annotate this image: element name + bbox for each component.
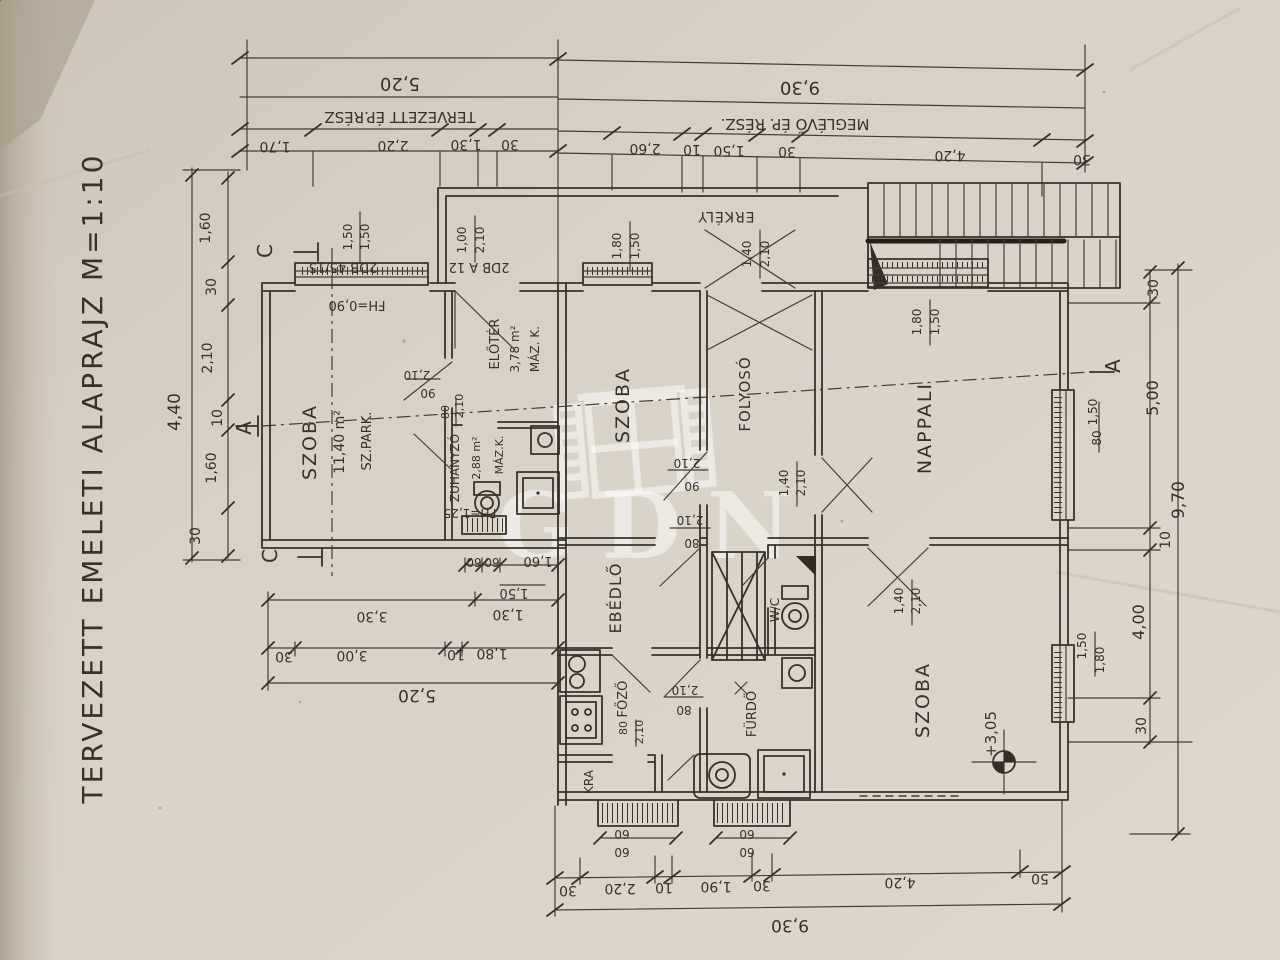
dim-bot-3: 10 xyxy=(655,879,673,895)
dim-bot-5: 30 xyxy=(753,877,771,893)
section-marker-c-bottom: C xyxy=(258,549,282,563)
dim-rad-2a: 60 xyxy=(739,827,754,841)
room-szoba-mid: SZOBA xyxy=(612,367,634,443)
room-zuhanyzo-area: 2,88 m² xyxy=(470,436,483,479)
dim-ll-10: 1,80 xyxy=(476,645,507,661)
dim-top-6: 10 xyxy=(683,141,701,157)
room-eloter-floor: MÁZ. K. xyxy=(527,326,542,372)
dim-top-1: 1,70 xyxy=(259,138,290,154)
window-1-h: 1,50 xyxy=(358,224,372,251)
window-note-2: 2DB A 12 xyxy=(449,259,510,274)
dim-bot-total: 9,30 xyxy=(771,915,809,935)
dim-rad-2b: 60 xyxy=(739,845,754,859)
dim-right-2: 5,00 xyxy=(1143,380,1162,416)
dim-rad-1b: 60 xyxy=(614,845,629,859)
floorplan-scan-photo: GDN xyxy=(0,0,1280,960)
door-7-h: 2,10 xyxy=(633,720,646,745)
dim-left-2: 30 xyxy=(204,278,220,296)
section-marker-a-left: A xyxy=(232,421,256,435)
room-szoba-bottom: SZOBA xyxy=(912,662,934,738)
room-zuhanyzo: ZUHANYZÓ xyxy=(447,434,462,502)
dim-bot-4: 1,90 xyxy=(700,878,731,894)
dim-ll-8: 3,00 xyxy=(336,647,367,663)
door-6-w: 80 xyxy=(676,703,691,717)
door-7-w: 80 xyxy=(617,721,630,735)
window-note-1: 2DB 45/15 xyxy=(309,259,378,274)
door-entry-w: 1,00 xyxy=(455,227,469,254)
dim-ll-3: 1,60 xyxy=(524,553,553,568)
shower-tray xyxy=(517,472,559,514)
dim-left-5: 1,60 xyxy=(204,452,220,483)
dim-top-9: 4,20 xyxy=(934,147,965,163)
dim-ll-7: 30 xyxy=(275,648,293,664)
label-new-part: TERVEZETT ÉP.RÉSZ xyxy=(324,108,476,127)
room-szoba-new-area: 11,40 m² xyxy=(332,410,348,474)
door-entry-h: 2,10 xyxy=(473,227,487,254)
level-mark-value: +3,05 xyxy=(982,711,1000,757)
dim-right-4: 4,00 xyxy=(1129,604,1148,640)
room-fozo: FŐZŐ xyxy=(615,681,631,718)
drawing-title: TERVEZETT EMELETI ALAPRAJZ M=1:10 xyxy=(76,153,109,805)
dim-ll-9: 10 xyxy=(447,646,465,662)
room-zuhanyzo-floor: MÁZ.K. xyxy=(493,436,506,475)
dim-bot-6: 4,20 xyxy=(884,874,915,890)
door-5-h: 2,10 xyxy=(794,470,808,497)
dim-right-3: 10 xyxy=(1158,531,1174,549)
room-eloter: ELŐTÉR xyxy=(487,319,503,370)
dim-top-7: 1,50 xyxy=(713,142,744,158)
door-3-w: 90 xyxy=(684,479,699,493)
dim-left-6: 30 xyxy=(188,527,204,545)
door-3-h: 2,10 xyxy=(674,456,701,470)
window-5-h: 1,80 xyxy=(1093,647,1107,674)
dim-left-3: 2,10 xyxy=(200,342,216,373)
window-4-w: 1,50 xyxy=(1086,399,1100,426)
dim-ll-2: 60 xyxy=(484,555,499,569)
dim-left-4: 10 xyxy=(210,409,226,427)
room-nappali: NAPPALI xyxy=(914,382,936,474)
dim-right-1: 30 xyxy=(1146,279,1162,297)
door-1-w: 90 xyxy=(420,386,435,400)
room-erkely: ERKÉLY xyxy=(697,208,754,225)
door-1-h: 2,10 xyxy=(404,368,431,382)
door-balcony-w: 1,40 xyxy=(740,241,754,268)
door-4-w: 80 xyxy=(684,536,699,550)
door-4-h: 2,10 xyxy=(677,513,704,527)
dim-top-10: 30 xyxy=(1073,151,1091,167)
door-6-h: 2,10 xyxy=(672,683,699,697)
dim-ll-5: 3,30 xyxy=(356,608,387,624)
window-2-w: 1,80 xyxy=(610,233,624,260)
door-8-w: 1,40 xyxy=(892,588,906,615)
dim-top-2: 2,20 xyxy=(377,137,408,153)
room-folyoso: FOLYOSÓ xyxy=(735,356,754,431)
dim-top-total-old: 9,30 xyxy=(780,77,820,98)
radiator-symbol xyxy=(598,800,678,826)
room-furdo: FÜRDŐ xyxy=(743,691,760,737)
window-5-w: 1,50 xyxy=(1075,633,1089,660)
note-fh125: FH=1,25 xyxy=(444,506,497,520)
dim-ll-4: 1,50 xyxy=(500,585,529,600)
dim-bot-2: 2,20 xyxy=(604,880,635,896)
dim-right-total: 9,70 xyxy=(1169,481,1189,519)
window-4-h: 80 xyxy=(1090,430,1104,445)
dim-top-4: 30 xyxy=(501,136,519,152)
door-5-w: 1,40 xyxy=(777,470,791,497)
section-marker-a-right: A xyxy=(1101,359,1125,373)
window-3-w: 1,80 xyxy=(910,309,924,336)
dim-left-1: 1,60 xyxy=(198,212,214,243)
section-marker-c-top: C xyxy=(253,244,277,258)
parapet-note: FH=0,90 xyxy=(328,297,385,312)
dim-top-5: 2,60 xyxy=(629,140,660,156)
radiator-symbol xyxy=(714,800,790,826)
door-balcony-h: 2,10 xyxy=(758,241,772,268)
dim-top-8: 30 xyxy=(778,143,796,159)
dim-right-5: 30 xyxy=(1134,717,1150,735)
room-wc: W/C xyxy=(768,598,782,622)
label-old-part: MEGLÉVŐ ÉP. RÉSZ. xyxy=(721,115,870,135)
dim-bot-1: 30 xyxy=(559,882,577,898)
door-2-w: 80 xyxy=(439,405,452,419)
dim-top-3: 1,30 xyxy=(450,136,481,152)
room-szoba-new-floor: SZ.PARK. xyxy=(360,412,375,471)
dim-rad-1a: 60 xyxy=(614,827,629,841)
window-1-w: 1,50 xyxy=(341,224,355,251)
dim-ll-6: 1,30 xyxy=(492,606,523,622)
window-2-h: 1,50 xyxy=(628,233,642,260)
room-eloter-area: 3,78 m² xyxy=(508,325,522,372)
dim-left-total: 4,40 xyxy=(165,393,185,431)
door-8-h: 2,10 xyxy=(909,588,923,615)
dim-ll-1: 60 xyxy=(466,555,481,569)
room-ebedlo: EBÉDLŐ xyxy=(605,562,625,633)
door-2-h: 2,10 xyxy=(453,394,466,419)
room-szoba-new: SZOBA xyxy=(299,404,321,480)
window-3-h: 1,50 xyxy=(928,309,942,336)
room-kra: KRA xyxy=(582,769,596,794)
dim-top-total-new: 5,20 xyxy=(380,73,420,94)
dim-ll-total: 5,20 xyxy=(398,685,436,705)
dim-bot-7: 50 xyxy=(1031,870,1049,886)
